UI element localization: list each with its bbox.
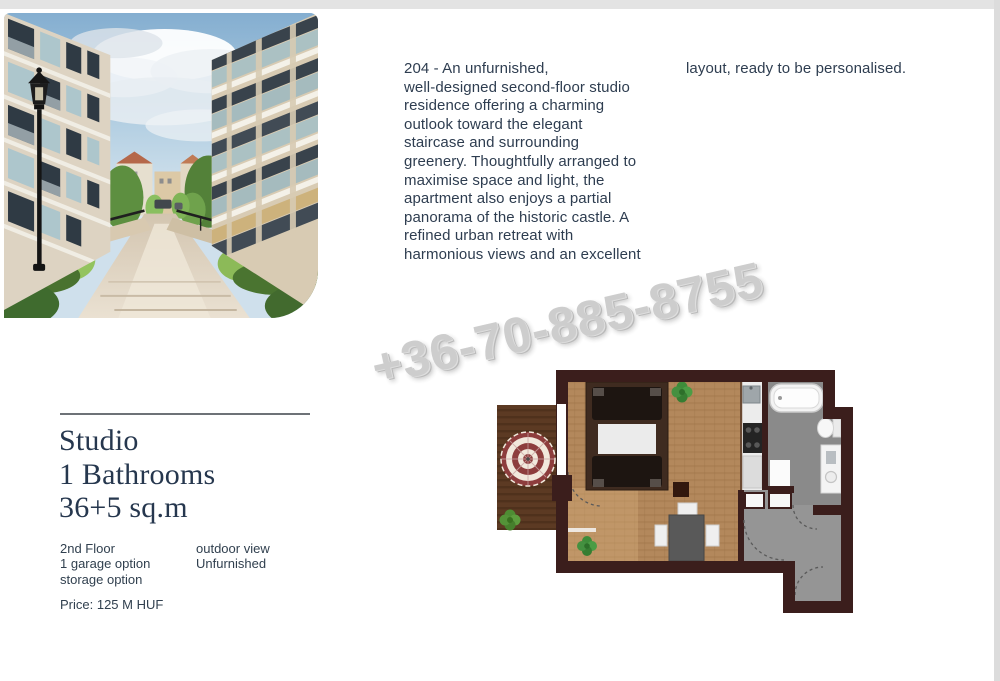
kitchen-bathroom-wall <box>762 382 768 490</box>
features-left: 2nd Floor 1 garage option storage option <box>60 541 150 587</box>
feature-garage: 1 garage option <box>60 556 150 571</box>
chair <box>706 525 719 546</box>
listing-type: Studio <box>59 424 339 458</box>
cooktop <box>743 423 762 453</box>
floor-light-patch <box>568 488 638 561</box>
bed-duvet <box>598 424 656 454</box>
listing-area: 36+5 sq.m <box>59 491 339 525</box>
page-top-border <box>0 0 1000 9</box>
courtyard-photo-illustration <box>4 13 318 318</box>
property-photo <box>4 13 318 318</box>
brochure-page: 204 - An unfurnished, well-designed seco… <box>0 0 1000 681</box>
balcony <box>497 405 558 531</box>
washing-machine <box>821 445 841 493</box>
stool <box>673 482 689 497</box>
feature-view: outdoor view <box>196 541 270 556</box>
page-right-border <box>994 0 1000 681</box>
double-bed <box>586 382 668 490</box>
listing-bathrooms: 1 Bathrooms <box>59 458 339 492</box>
feature-furnishing: Unfurnished <box>196 556 270 571</box>
chair <box>678 503 697 515</box>
kitchenette <box>740 382 762 490</box>
description-column-2: layout, ready to be personalised. <box>686 60 941 79</box>
price-label: Price: 125 M HUF <box>60 597 163 612</box>
parked-car <box>154 200 171 209</box>
feature-storage: storage option <box>60 572 150 587</box>
floor-plan-illustration <box>490 360 870 620</box>
bathroom-closet <box>770 460 790 486</box>
description-column-1: 204 - An unfurnished, well-designed seco… <box>404 60 689 265</box>
wall-pillar <box>552 475 572 501</box>
chair <box>655 525 667 546</box>
bath-hall-wall <box>813 505 841 515</box>
parasol <box>501 432 555 486</box>
feature-floor: 2nd Floor <box>60 541 150 556</box>
toilet <box>818 419 842 438</box>
bench-line <box>568 528 596 532</box>
section-divider <box>60 413 310 415</box>
room-hall-wall <box>738 490 744 561</box>
hallway-closets <box>745 493 791 508</box>
left-building <box>4 13 110 310</box>
floor-plan <box>490 360 870 620</box>
balcony-door <box>557 404 566 476</box>
kitchen-cabinet <box>743 456 762 488</box>
listing-title: Studio 1 Bathrooms 36+5 sq.m <box>59 424 339 525</box>
features-right: outdoor view Unfurnished <box>196 541 270 572</box>
